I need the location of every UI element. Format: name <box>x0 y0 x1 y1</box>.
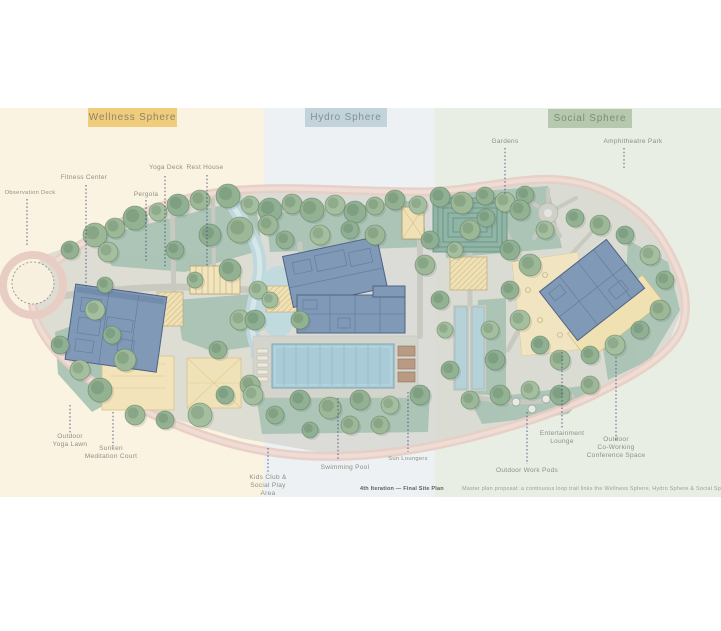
zone-chip-wellness: Wellness Sphere <box>88 108 177 127</box>
tree-texture <box>99 279 108 288</box>
tree-texture <box>202 227 214 239</box>
tree-texture <box>303 201 316 214</box>
swimming-pool <box>272 344 394 388</box>
tree-texture <box>553 353 564 364</box>
tree-texture <box>413 388 424 399</box>
observation-plaza <box>12 262 54 304</box>
tree-texture <box>170 197 182 209</box>
tree-texture <box>63 243 73 253</box>
tree-texture <box>105 328 115 338</box>
tree-texture <box>383 398 393 408</box>
tree-texture <box>293 393 304 404</box>
tree-texture <box>347 204 359 216</box>
tree-texture <box>53 338 63 348</box>
tree-texture <box>343 223 353 233</box>
label-entertainment-lounge: Entertainment Lounge <box>540 430 584 446</box>
label-gardens: Gardens <box>491 138 518 146</box>
tree-texture <box>513 313 524 324</box>
label-sun-loungers: Sun Loungers <box>388 455 428 463</box>
tree-texture <box>233 313 244 324</box>
label-outdoor-coworking: Outdoor Co-Working Conference Space <box>587 436 646 460</box>
tree-texture <box>211 343 221 353</box>
tree-texture <box>268 408 278 418</box>
tree-texture <box>189 274 198 283</box>
tree-texture <box>488 353 499 364</box>
master-plan-drawing <box>0 0 721 631</box>
tree-texture <box>533 338 543 348</box>
tree-texture <box>439 324 448 333</box>
tree-texture <box>168 243 178 253</box>
tree-texture <box>88 303 99 314</box>
tree-texture <box>108 221 119 232</box>
gathering-plaza <box>538 203 558 223</box>
label-meditation-court: Sunken Meditation Court <box>85 445 138 461</box>
tree-texture <box>478 189 488 199</box>
tree-texture <box>463 393 473 403</box>
tree-texture <box>498 195 509 206</box>
tree-texture <box>513 203 524 214</box>
tree-texture <box>304 424 313 433</box>
tree-texture <box>251 283 261 293</box>
zone-chip-hydro: Hydro Sphere <box>305 108 387 127</box>
tree-texture <box>353 393 364 404</box>
tree-texture <box>248 313 259 324</box>
caption-description: Master plan proposal: a continuous loop … <box>462 486 721 492</box>
tree-texture <box>261 201 274 214</box>
tree-texture <box>151 205 161 215</box>
label-outdoor-work-pods: Outdoor Work Pods <box>496 467 558 475</box>
tree-texture <box>368 228 379 239</box>
tree-texture <box>503 243 514 254</box>
tree-texture <box>373 418 383 428</box>
tree-texture <box>583 378 593 388</box>
tree-texture <box>503 283 513 293</box>
tree-texture <box>117 352 129 364</box>
tree-texture <box>653 303 664 314</box>
tree-texture <box>222 262 234 274</box>
tree-texture <box>433 190 444 201</box>
tree-texture <box>218 388 228 398</box>
caption-title: 4th Iteration — Final Site Plan <box>360 486 444 492</box>
tree-texture <box>86 226 99 239</box>
tree-texture <box>343 418 353 428</box>
tree-texture <box>463 223 474 234</box>
tree-texture <box>128 408 139 419</box>
tree-texture <box>583 348 593 358</box>
tree-texture <box>328 198 339 209</box>
tree-texture <box>322 400 334 412</box>
label-amphitheatre-park: Amphitheatre Park <box>604 138 663 146</box>
tree-texture <box>658 273 668 283</box>
tree-texture <box>522 257 534 269</box>
tree-texture <box>449 244 458 253</box>
tree-texture <box>518 188 528 198</box>
tree-texture <box>193 193 204 204</box>
tree-texture <box>285 197 296 208</box>
tree-texture <box>479 211 489 221</box>
tree-texture <box>219 187 232 200</box>
tree-texture <box>126 209 139 222</box>
pool-cabanas <box>398 346 415 382</box>
tree-texture <box>388 193 399 204</box>
tree-texture <box>593 218 604 229</box>
label-rest-house: Rest House <box>187 164 224 172</box>
label-observation-deck: Observation Deck <box>5 189 56 197</box>
tree-texture <box>618 228 628 238</box>
zone-chip-social: Social Sphere <box>548 109 632 128</box>
tree-texture <box>101 245 112 256</box>
tree-texture <box>538 223 548 233</box>
tree-texture <box>368 199 378 209</box>
label-pergola: Pergola <box>134 191 159 199</box>
tree-texture <box>91 381 104 394</box>
tree-texture <box>643 248 654 259</box>
tree-texture <box>568 211 578 221</box>
tree-texture <box>433 293 443 303</box>
tree-texture <box>246 388 257 399</box>
tree-texture <box>158 413 168 423</box>
tree-texture <box>261 218 272 229</box>
label-kids-club: Kids Club & Social Play Area <box>249 474 286 498</box>
tree-texture <box>523 383 533 393</box>
tree-texture <box>608 338 619 349</box>
tree-texture <box>293 313 303 323</box>
tree-texture <box>191 406 204 419</box>
tree-texture <box>633 323 643 333</box>
timber-deck <box>450 257 487 290</box>
tree-texture <box>418 258 429 269</box>
tree-texture <box>313 228 324 239</box>
tree-texture <box>423 233 433 243</box>
tree-texture <box>493 388 504 399</box>
tree-texture <box>483 323 493 333</box>
label-yoga-deck: Yoga Deck <box>149 164 183 172</box>
tree-texture <box>278 233 288 243</box>
tree-texture <box>454 195 466 207</box>
site-plan-page: Wellness Sphere Hydro Sphere Social Sphe… <box>0 0 721 631</box>
tree-texture <box>411 198 421 208</box>
tree-texture <box>443 363 453 373</box>
label-fitness-center: Fitness Center <box>61 174 107 182</box>
tree-texture <box>73 363 84 374</box>
label-swimming-pool: Swimming Pool <box>321 464 370 472</box>
tree-texture <box>230 220 244 234</box>
tree-texture <box>264 294 273 303</box>
label-outdoor-yoga-lawn: Outdoor Yoga Lawn <box>53 433 88 449</box>
tree-texture <box>243 198 253 208</box>
